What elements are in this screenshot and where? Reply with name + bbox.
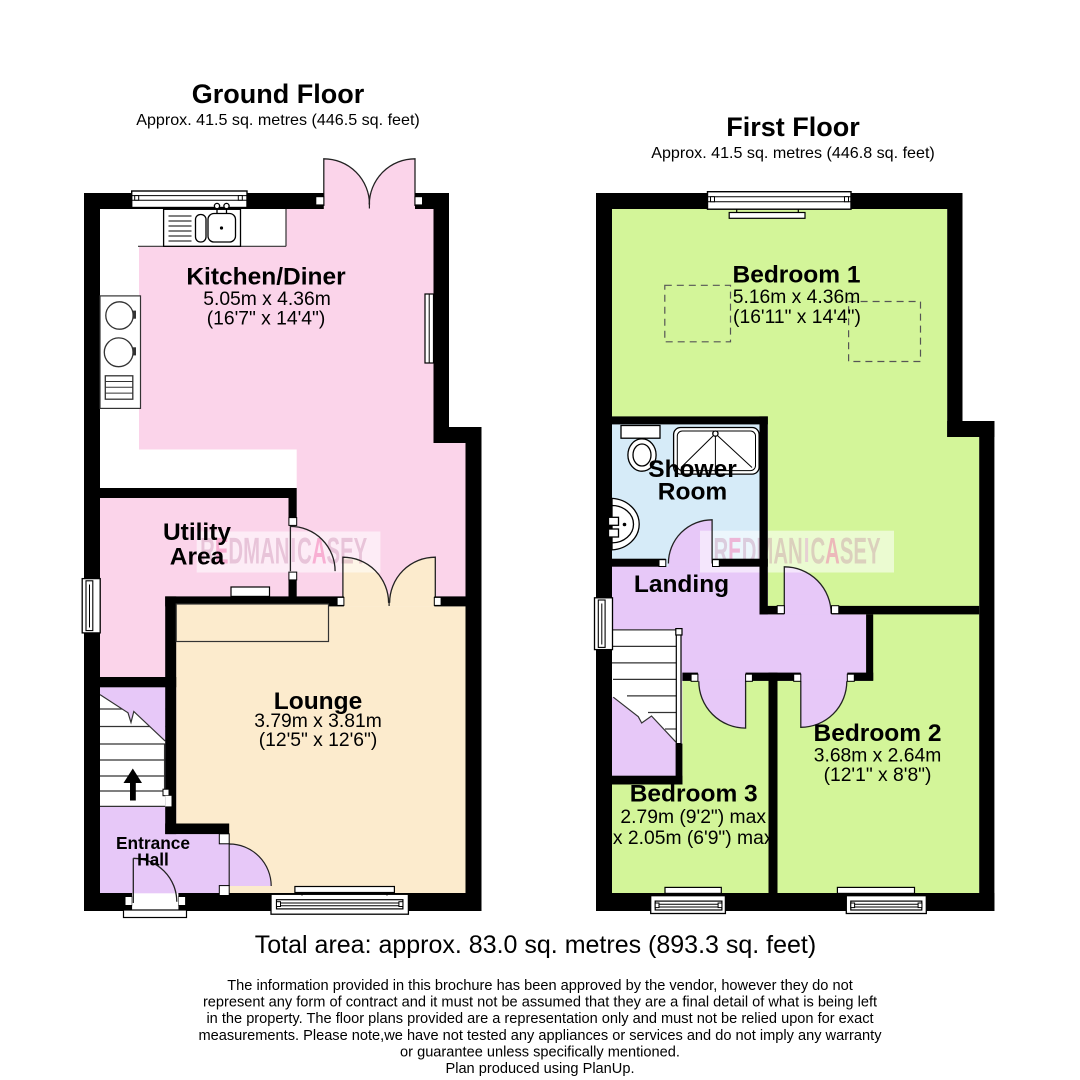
svg-text:3.68m x 2.64m: 3.68m x 2.64m [814,745,942,766]
svg-text:(12'1" x 8'8"): (12'1" x 8'8") [824,765,932,786]
svg-text:Bedroom 1: Bedroom 1 [733,262,861,289]
svg-text:Bedroom 2: Bedroom 2 [814,720,942,747]
svg-text:x 2.05m (6'9") max: x 2.05m (6'9") max [613,828,774,849]
svg-text:represent any form of contract: represent any form of contract and it mu… [203,995,877,1011]
svg-text:Landing: Landing [634,571,729,598]
svg-text:2.79m (9'2") max: 2.79m (9'2") max [620,807,766,828]
svg-text:Approx. 41.5 sq. metres (446.5: Approx. 41.5 sq. metres (446.5 sq. feet) [136,111,420,129]
svg-text:The information provided in th: The information provided in this brochur… [227,978,853,994]
svg-text:Room: Room [658,479,727,506]
svg-text:(12'5" x 12'6"): (12'5" x 12'6") [259,730,378,751]
svg-text:in the property. The floor pla: in the property. The floor plans provide… [206,1011,873,1027]
svg-text:Hall: Hall [137,850,169,870]
svg-text:Approx. 41.5 sq. metres (446.8: Approx. 41.5 sq. metres (446.8 sq. feet) [651,144,935,162]
svg-text:measurements. Please note,we h: measurements. Please note,we have not te… [198,1028,882,1044]
svg-text:Bedroom 3: Bedroom 3 [630,781,758,808]
svg-text:(16'11" x 14'4"): (16'11" x 14'4") [733,307,861,328]
svg-text:Utility: Utility [163,519,231,546]
svg-text:Plan produced using PlanUp.: Plan produced using PlanUp. [445,1061,634,1077]
svg-text:(16'7" x 14'4"): (16'7" x 14'4") [207,309,326,330]
svg-text:Area: Area [170,544,225,571]
svg-text:Total area: approx. 83.0 sq. m: Total area: approx. 83.0 sq. metres (893… [255,931,816,959]
svg-text:or guarantee unless specifical: or guarantee unless specifically mention… [400,1044,680,1060]
svg-text:First Floor: First Floor [726,112,860,142]
svg-text:Ground Floor: Ground Floor [192,79,365,109]
svg-text:Kitchen/Diner: Kitchen/Diner [186,264,346,291]
svg-text:3.79m x 3.81m: 3.79m x 3.81m [254,711,382,732]
svg-text:5.16m x 4.36m: 5.16m x 4.36m [733,287,861,308]
svg-text:5.05m x 4.36m: 5.05m x 4.36m [203,289,331,310]
